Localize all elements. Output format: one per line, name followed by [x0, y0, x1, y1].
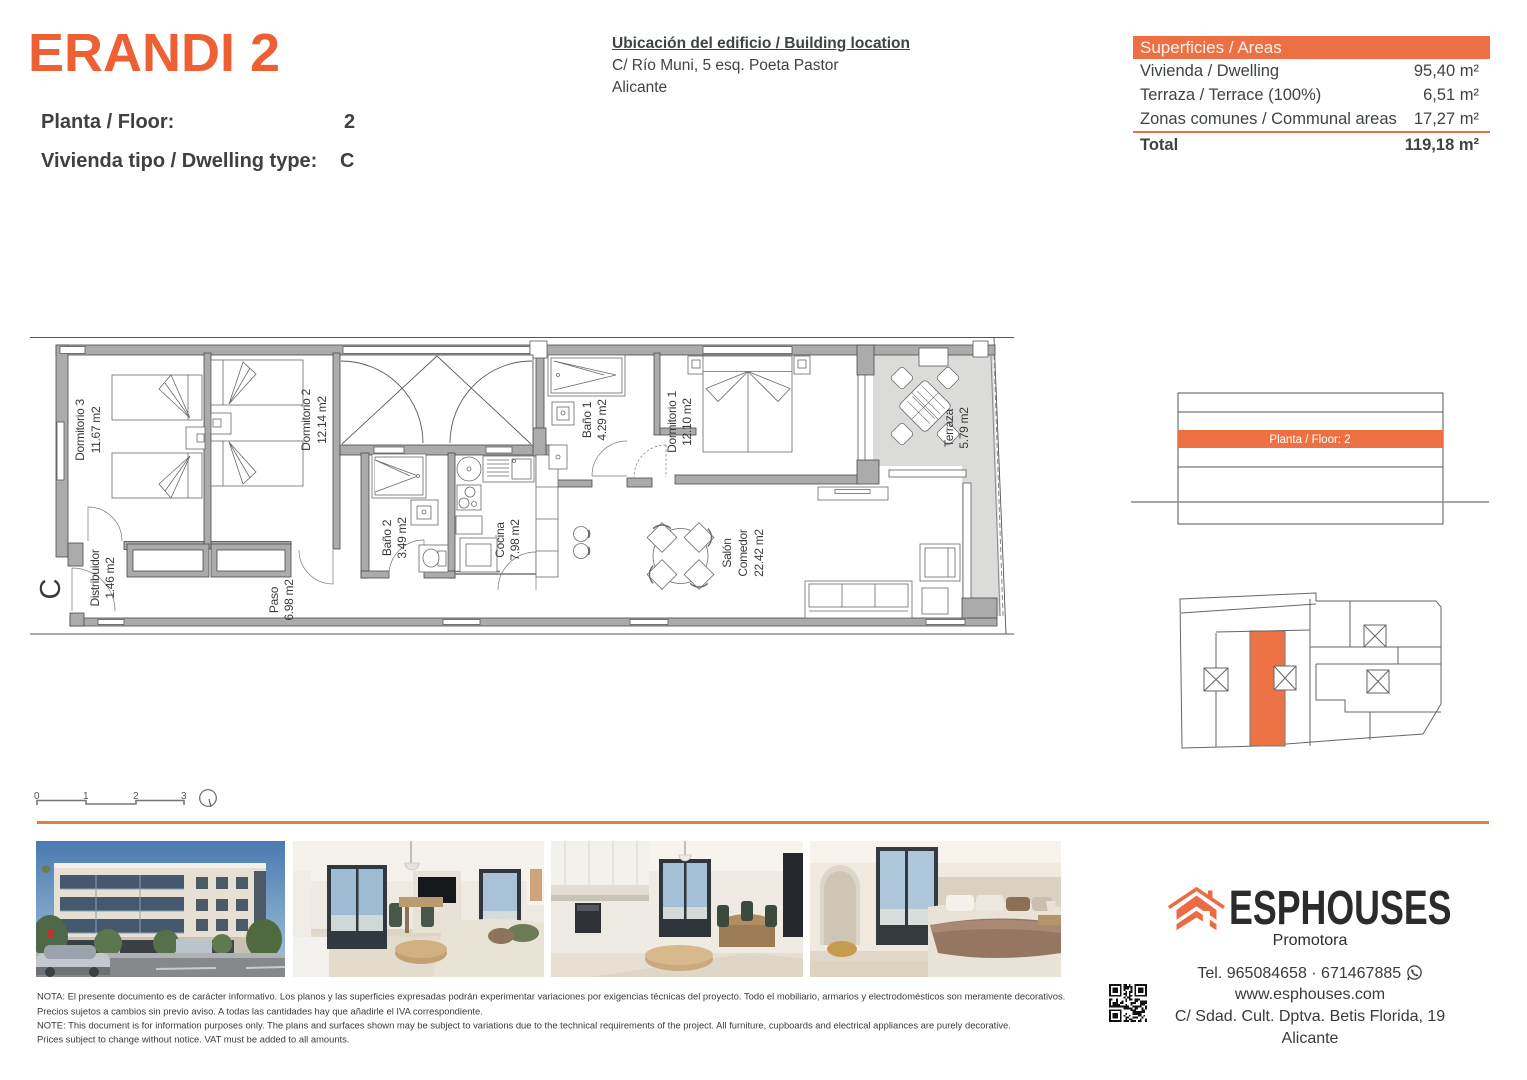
svg-text:Comedor: Comedor — [736, 529, 750, 577]
svg-text:Cocina: Cocina — [493, 522, 507, 558]
svg-text:22.42 m2: 22.42 m2 — [752, 529, 766, 577]
svg-text:3.49 m2: 3.49 m2 — [395, 517, 409, 559]
svg-text:12.10 m2: 12.10 m2 — [680, 398, 694, 446]
svg-text:1: 1 — [83, 791, 89, 802]
svg-text:0: 0 — [34, 791, 40, 802]
svg-text:4.29 m2: 4.29 m2 — [595, 399, 609, 441]
svg-text:Salón: Salón — [720, 538, 734, 567]
svg-text:Dormitorio 2: Dormitorio 2 — [299, 388, 313, 450]
svg-text:Terraza: Terraza — [942, 408, 956, 447]
svg-text:11.67 m2: 11.67 m2 — [89, 406, 103, 453]
svg-text:Planta / Floor: 2: Planta / Floor: 2 — [1269, 434, 1350, 446]
svg-text:Baño 2: Baño 2 — [380, 519, 394, 556]
svg-text:2: 2 — [133, 791, 139, 802]
svg-text:7.98 m2: 7.98 m2 — [508, 519, 522, 561]
svg-text:5.79 m2: 5.79 m2 — [957, 407, 971, 449]
svg-text:C: C — [35, 579, 67, 600]
svg-text:Dormitorio 1: Dormitorio 1 — [665, 390, 679, 452]
svg-text:Distribuidor: Distribuidor — [88, 549, 102, 606]
svg-text:1.46 m2: 1.46 m2 — [103, 557, 117, 599]
svg-text:Paso: Paso — [267, 586, 281, 613]
svg-text:6.98 m2: 6.98 m2 — [282, 579, 296, 621]
svg-text:3: 3 — [181, 791, 187, 802]
svg-text:Dormitorio 3: Dormitorio 3 — [73, 398, 87, 460]
svg-text:12.14 m2: 12.14 m2 — [315, 396, 329, 444]
svg-text:Baño 1: Baño 1 — [580, 401, 594, 438]
